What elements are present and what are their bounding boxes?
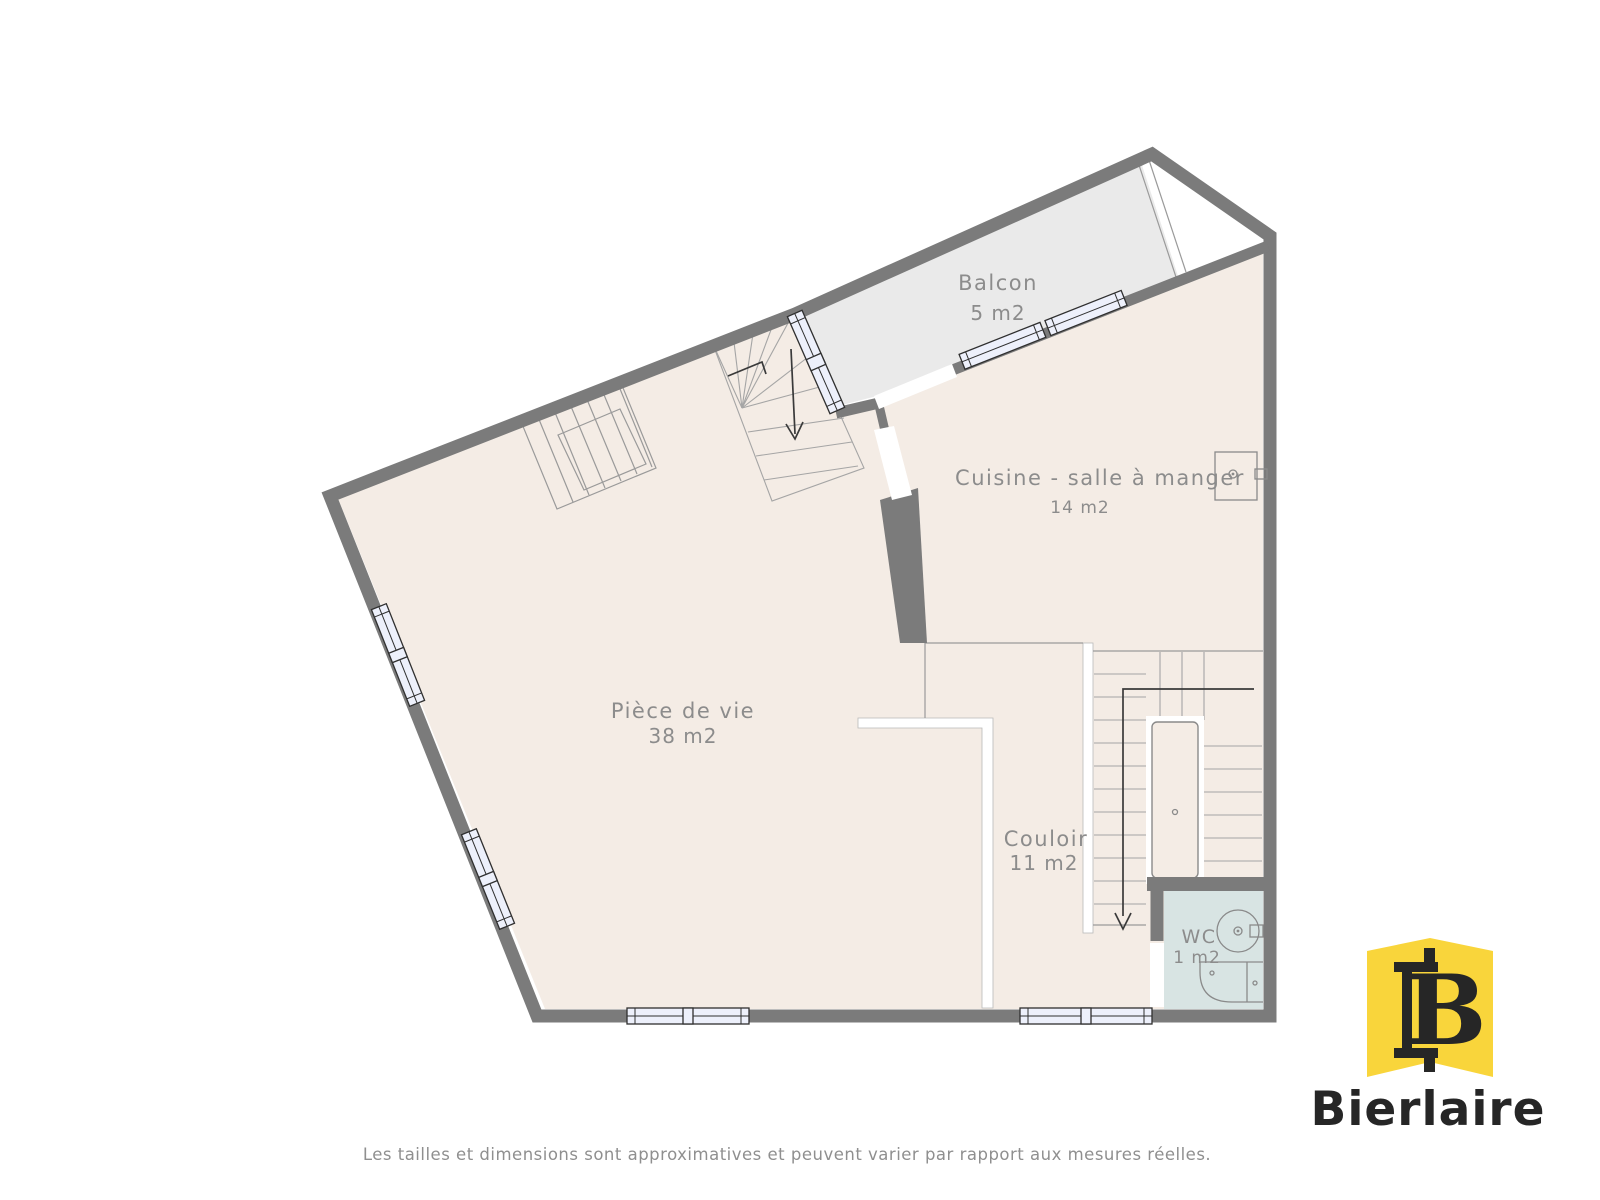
- window: [627, 1008, 749, 1024]
- svg-text:B: B: [1405, 954, 1486, 1067]
- room-area-cuisine: 14 m2: [1050, 498, 1109, 518]
- company-logo: B Bierlaire: [1311, 938, 1546, 1137]
- interior-floor: [337, 247, 1263, 1009]
- room-area-couloir: 11 m2: [1009, 851, 1078, 875]
- room-area-balcon: 5 m2: [970, 301, 1025, 325]
- room-label-cuisine: Cuisine - salle à manger: [955, 466, 1245, 490]
- wc-door-opening: [1150, 943, 1164, 1007]
- floorplan-drawing: Balcon 5 m2 Cuisine - salle à manger 14 …: [0, 0, 1600, 1200]
- room-label-wc: WC: [1181, 926, 1216, 948]
- room-area-wc: 1 m2: [1173, 948, 1221, 968]
- window: [1020, 1008, 1152, 1024]
- room-label-couloir: Couloir: [1004, 827, 1088, 851]
- logo-wordmark: Bierlaire: [1311, 1082, 1546, 1137]
- disclaimer-text: Les tailles et dimensions sont approxima…: [363, 1145, 1211, 1164]
- room-label-balcon: Balcon: [958, 271, 1038, 295]
- logo-monogram-icon: B: [1394, 948, 1487, 1072]
- floorplan-page: Balcon 5 m2 Cuisine - salle à manger 14 …: [0, 0, 1600, 1200]
- room-area-piece-de-vie: 38 m2: [648, 724, 717, 748]
- stair-side-channel: [1083, 643, 1093, 933]
- room-label-piece-de-vie: Pièce de vie: [611, 699, 755, 723]
- stair-core: [1152, 722, 1198, 878]
